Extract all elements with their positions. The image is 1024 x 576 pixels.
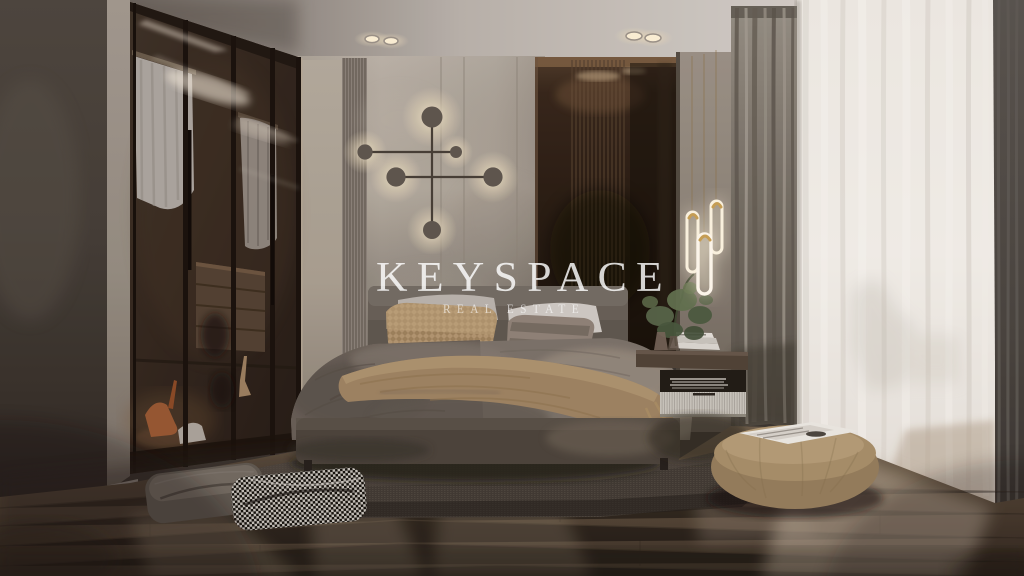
svg-text:REAL ESTATE: REAL ESTATE [443,302,585,316]
svg-text:KEYSPACE: KEYSPACE [376,255,672,301]
